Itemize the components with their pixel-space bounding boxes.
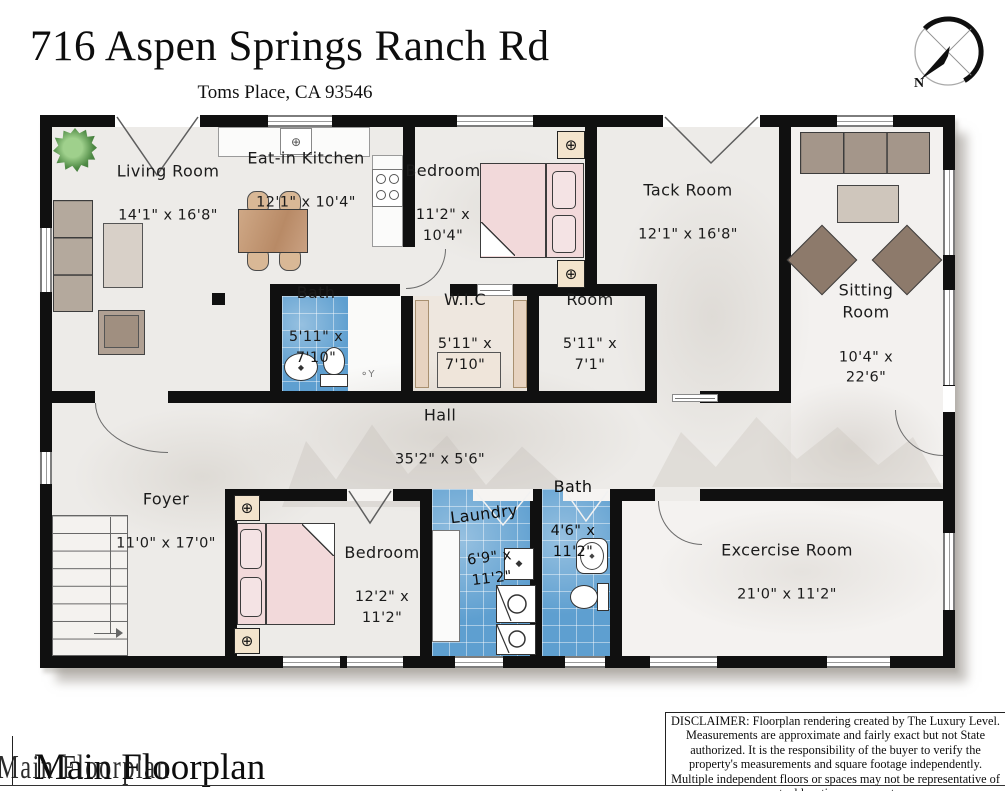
room-label-living: Living Room 14'1" x 16'8"	[117, 137, 220, 248]
compass-icon: N	[898, 10, 994, 106]
footer-rule	[0, 785, 1005, 786]
wall-segment	[527, 296, 539, 391]
room-label-tack: Tack Room 12'1" x 16'8"	[638, 156, 738, 267]
coffee-table	[837, 185, 899, 223]
pillow	[240, 529, 262, 569]
wall-segment	[52, 391, 95, 403]
room-label-bath-bottom: Bath 4'6" x 11'2"	[551, 453, 596, 585]
wall-segment	[779, 127, 791, 403]
window	[565, 656, 605, 668]
hall-door-arc	[95, 403, 168, 453]
room-label-hall: Hall 35'2" x 5'6"	[395, 381, 485, 492]
plant-icon	[53, 128, 97, 172]
window	[650, 656, 717, 668]
toilet-icon	[570, 585, 598, 609]
room-label-exercise: Excercise Room 21'0" x 11'2"	[721, 516, 853, 627]
window	[40, 228, 52, 292]
sliding-door	[672, 394, 718, 402]
plan-title: Main Floorplan Main Floorplan	[34, 746, 265, 789]
pillow	[552, 171, 576, 209]
floorplan-page: 716 Aspen Springs Ranch Rd Toms Place, C…	[0, 0, 1005, 791]
room-label-sitting: Sitting Room 10'4" x 22'6"	[828, 257, 905, 412]
wall-segment	[401, 296, 413, 391]
room-label-foyer: Foyer 11'0" x 17'0"	[116, 465, 216, 576]
room-label-bedroom-top: Bedroom 11'2" x 10'4"	[405, 137, 480, 269]
compass-n-label: N	[914, 76, 924, 92]
nightstand-lamp-icon: ⊕	[234, 495, 260, 521]
window	[943, 290, 955, 385]
plan-title-ghost: Main Floorplan	[0, 749, 170, 787]
wall-segment	[610, 489, 622, 656]
wall-segment	[645, 284, 657, 397]
room-label-kitchen: Eat-in Kitchen 12'1" x 10'4"	[247, 124, 364, 235]
door-opening	[943, 386, 955, 412]
closet-shelf	[513, 300, 527, 388]
window	[943, 533, 955, 610]
bed-fold-line	[545, 164, 547, 257]
stair-arrow-icon	[116, 628, 123, 638]
room-label-room: Room 5'11" x 7'1"	[563, 266, 617, 398]
nightstand-lamp-icon: ⊕	[557, 131, 585, 159]
closet-shelf	[415, 300, 429, 388]
bed-sheet-fold	[302, 524, 334, 556]
wall-column	[212, 293, 225, 305]
window	[455, 656, 503, 668]
stair-direction-line	[94, 633, 118, 634]
window	[283, 656, 340, 668]
nightstand-lamp-icon: ⊕	[234, 628, 260, 654]
toilet-tank	[597, 583, 609, 611]
dryer-icon	[496, 624, 536, 655]
window	[837, 115, 893, 127]
window	[40, 452, 52, 484]
pillow	[240, 577, 262, 617]
window	[457, 115, 533, 127]
room-label-wic: W.I.C 5'11" x 7'10"	[438, 266, 492, 398]
stove-icon	[372, 169, 403, 207]
floorplan: ⊕ ⊕ ⊕ ◆ ⚬Y	[40, 115, 955, 668]
window	[943, 170, 955, 255]
wall-segment	[700, 489, 943, 501]
sofa	[800, 132, 930, 174]
stair-direction-line	[110, 517, 111, 633]
sofa	[53, 200, 93, 312]
towel-hook-icon: ⚬Y	[360, 369, 380, 383]
bed-fold-line	[265, 524, 267, 624]
page-title: 716 Aspen Springs Ranch Rd	[30, 22, 549, 71]
armchair-cushion	[104, 315, 139, 348]
room-label-bedroom-bottom: Bedroom 12'2" x 11'2"	[344, 519, 419, 651]
pillow	[552, 215, 576, 253]
bed-sheet-fold	[481, 222, 515, 256]
disclaimer-box: DISCLAIMER: Floorplan rendering created …	[665, 712, 1005, 785]
wall-segment	[420, 489, 432, 656]
window	[827, 656, 890, 668]
window	[347, 656, 403, 668]
room-label-bath-mid: Bath 5'11" x 7'10"	[289, 259, 343, 391]
wall-segment	[270, 296, 282, 391]
page-subtitle: Toms Place, CA 93546	[120, 82, 450, 104]
